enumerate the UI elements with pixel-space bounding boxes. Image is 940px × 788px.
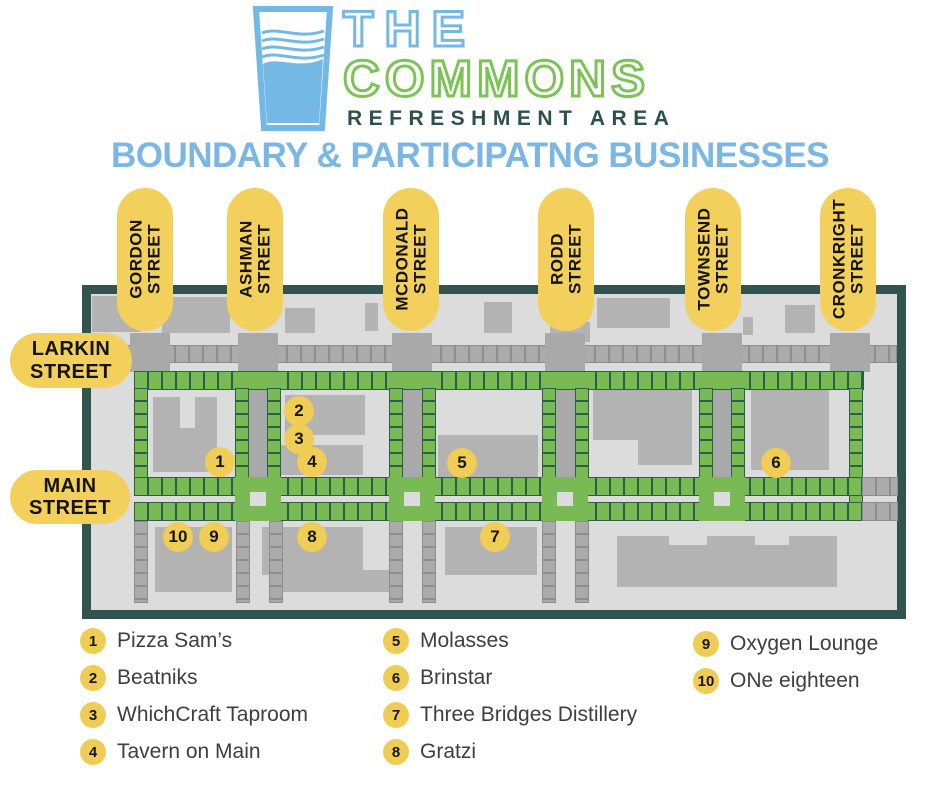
street-suffix: STREET [10,361,132,383]
street-crossing [545,333,585,372]
boundary-west-green [135,389,147,478]
legend-item: 5 Molasses [383,628,637,654]
building [285,308,315,333]
street-crossing [392,333,432,372]
townsend-roadway [712,389,732,478]
legend-label: Molasses [420,629,509,653]
boundary-crossing [699,372,745,389]
map-marker-6: 6 [761,448,791,478]
building [789,536,837,548]
flyer-page: THE COMMONS REFRESHMENT AREA BOUNDARY & … [0,0,940,788]
map-marker-5: 5 [447,448,477,478]
main-intersection-hole [714,492,730,506]
legend-label: ONe eighteen [730,669,860,693]
gray-curb [423,522,435,602]
legend-marker: 7 [383,702,409,728]
legend-item: 1 Pizza Sam’s [80,628,308,654]
building-notch [593,440,638,465]
street-pill-larkin: LARKIN STREET [10,333,132,388]
street-suffix: STREET [412,188,430,331]
building [280,570,390,592]
street-pill-mcdonald: MCDONALDSTREET [383,188,439,331]
street-crossing [830,333,870,372]
main-intersection-hole [250,492,266,506]
green-curb [236,389,248,478]
district-map: 1 2 3 4 5 6 7 8 9 10 [82,285,906,619]
legend-item: 10 ONe eighteen [693,668,878,694]
street-pill-ashman: ASHMANSTREET [227,188,283,331]
main-street-east-hatch [863,478,897,495]
street-pill-townsend: TOWNSENDSTREET [685,188,741,331]
legend-label: Three Bridges Distillery [420,703,637,727]
map-marker-4: 4 [297,447,327,477]
street-name: GORDON [127,188,145,331]
building [597,298,670,328]
legend-marker: 1 [80,628,106,654]
building [484,302,512,333]
boundary-crossing [542,372,588,389]
building [743,317,753,335]
legend-item: 3 WhichCraft Taproom [80,702,308,728]
main-intersection-hole [404,492,420,506]
street-name: MAIN [10,475,130,497]
map-marker-1: 1 [205,447,235,477]
legend-marker: 3 [80,702,106,728]
boundary-east-green [850,389,862,520]
legend-label: Brinstar [420,666,492,690]
legend-marker: 5 [383,628,409,654]
building [617,545,837,587]
green-curb [423,389,435,478]
gray-curb [543,522,555,602]
street-crossing [702,333,742,372]
legend-marker: 6 [383,665,409,691]
legend-item: 8 Gratzi [383,739,637,765]
legend-label: Tavern on Main [117,740,261,764]
map-marker-7: 7 [480,522,510,552]
logo-subtitle: REFRESHMENT AREA [347,108,675,129]
gray-curb [270,522,282,602]
legend-item: 9 Oxygen Lounge [693,631,878,657]
building [617,536,669,548]
green-curb [543,389,555,478]
green-curb [700,389,712,478]
map-marker-2: 2 [284,396,314,426]
gray-curb [390,522,402,602]
street-pill-cronkright: CRONKRIGHTSTREET [820,188,876,331]
boundary-crossing [389,372,435,389]
street-suffix: STREET [146,188,164,331]
legend-column-2: 5 Molasses 6 Brinstar 7 Three Bridges Di… [383,628,637,765]
gray-curb [237,522,249,602]
legend-marker: 2 [80,665,106,691]
logo-word-commons: COMMONS [343,53,650,104]
legend-item: 4 Tavern on Main [80,739,308,765]
page-title: BOUNDARY & PARTICIPATNG BUSINESSES [0,137,940,175]
boundary-crossing [235,372,281,389]
map-marker-8: 8 [297,522,327,552]
legend-item: 2 Beatniks [80,665,308,691]
gray-curb [576,522,588,602]
legend-marker: 4 [80,739,106,765]
street-suffix: STREET [849,188,867,331]
building [365,303,378,331]
green-curb [268,389,280,478]
street-pill-rodd: RODDSTREET [538,188,594,331]
logo-word-the: THE [343,4,476,54]
legend-label: WhichCraft Taproom [117,703,308,727]
street-suffix: STREET [10,497,130,519]
green-curb [576,389,588,478]
green-curb [732,389,744,478]
street-pill-gordon: GORDONSTREET [117,188,173,331]
street-suffix: STREET [256,188,274,331]
legend-label: Pizza Sam’s [117,629,232,653]
main-intersection-hole [557,492,573,506]
legend-label: Beatniks [117,666,198,690]
legend-marker: 8 [383,739,409,765]
legend-column-3: 9 Oxygen Lounge 10 ONe eighteen [693,631,878,694]
cup-logo-icon [250,6,336,132]
street-suffix: STREET [714,188,732,331]
street-crossing [130,333,170,372]
street-name: LARKIN [10,338,132,360]
street-name: TOWNSEND [695,188,713,331]
legend-item: 7 Three Bridges Distillery [383,702,637,728]
legend-item: 6 Brinstar [383,665,637,691]
building [707,536,755,548]
building [785,305,815,333]
map-marker-9: 9 [199,522,229,552]
legend-column-1: 1 Pizza Sam’s 2 Beatniks 3 WhichCraft Ta… [80,628,308,765]
legend-label: Oxygen Lounge [730,632,878,656]
legend-marker: 9 [693,631,719,657]
street-name: MCDONALD [393,188,411,331]
legend-label: Gratzi [420,740,476,764]
ashman-roadway [248,389,268,478]
rodd-roadway [555,389,576,478]
map-marker-10: 10 [163,522,193,552]
street-pill-main: MAIN STREET [10,470,130,524]
larkin-street-hatch [92,346,896,362]
street-name: CRONKRIGHT [830,188,848,331]
street-suffix: STREET [567,188,585,331]
building-notch [180,397,195,428]
gray-curb [135,522,147,602]
main-street-east-hatch [863,503,897,520]
green-curb [390,389,402,478]
street-crossing [238,333,278,372]
street-name: ASHMAN [237,188,255,331]
street-name: RODD [548,188,566,331]
legend-marker: 10 [693,668,719,694]
mcdonald-roadway [402,389,423,478]
